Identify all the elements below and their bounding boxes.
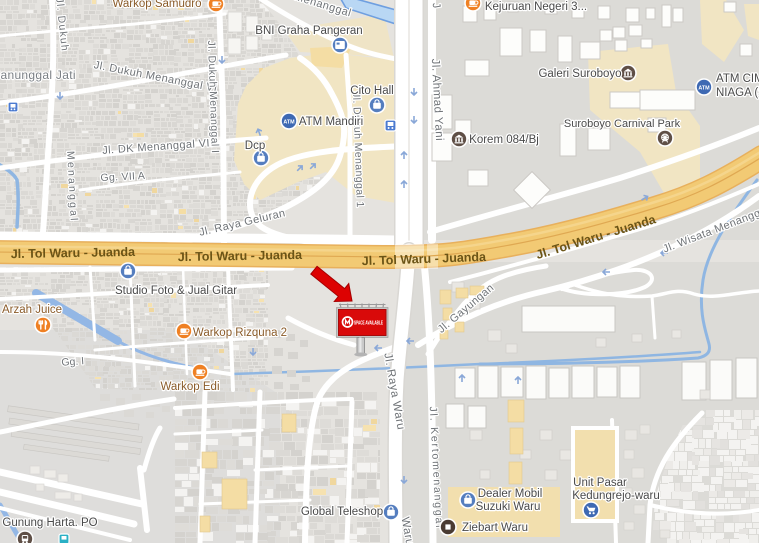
svg-text:Ziebart Waru: Ziebart Waru	[462, 522, 528, 534]
svg-text:Cito Hall: Cito Hall	[350, 85, 393, 97]
svg-text:ATM Mandiri: ATM Mandiri	[299, 116, 363, 128]
svg-text:Gg. VII A: Gg. VII A	[100, 170, 145, 184]
svg-text:Dealer Mobil: Dealer Mobil	[478, 488, 543, 500]
svg-text:Suzuki Waru: Suzuki Waru	[476, 501, 541, 513]
svg-text:Warkop Edi: Warkop Edi	[160, 381, 219, 393]
svg-text:Dcp: Dcp	[245, 140, 265, 152]
svg-text:Kejuruan Negeri 3...: Kejuruan Negeri 3...	[485, 1, 587, 13]
svg-text:Korem 084/Bj: Korem 084/Bj	[469, 134, 539, 146]
svg-text:Manunggal Jati: Manunggal Jati	[0, 68, 76, 82]
svg-text:Studio Foto & Jual Gitar: Studio Foto & Jual Gitar	[115, 285, 237, 297]
svg-text:ATM CIM: ATM CIM	[716, 73, 759, 85]
svg-text:ATM: ATM	[283, 120, 295, 126]
svg-text:Arzah Juice: Arzah Juice	[2, 304, 62, 316]
svg-text:Warkop Samudro: Warkop Samudro	[112, 0, 201, 10]
svg-text:Jl. Tol Waru - Juanda: Jl. Tol Waru - Juanda	[178, 248, 304, 264]
svg-text:Jl. Tol Waru - Juanda: Jl. Tol Waru - Juanda	[11, 245, 137, 261]
svg-text:SPACE AVAILABLE: SPACE AVAILABLE	[354, 321, 383, 327]
svg-text:Unit Pasar: Unit Pasar	[573, 477, 627, 489]
svg-text:NIAGA (S: NIAGA (S	[716, 87, 759, 99]
svg-text:Suroboyo Carnival Park: Suroboyo Carnival Park	[564, 118, 681, 130]
svg-text:Galeri Suroboyo: Galeri Suroboyo	[538, 68, 621, 80]
svg-text:Gunung Harta. PO: Gunung Harta. PO	[2, 517, 97, 529]
svg-text:Gg. I: Gg. I	[61, 355, 85, 369]
svg-text:ATM: ATM	[698, 86, 710, 92]
svg-text:Kedungrejo-waru: Kedungrejo-waru	[572, 490, 660, 502]
svg-text:BNI Graha Pangeran: BNI Graha Pangeran	[255, 25, 362, 37]
svg-text:Global Teleshop: Global Teleshop	[301, 506, 383, 518]
svg-text:Warkop Rizquna 2: Warkop Rizquna 2	[193, 327, 287, 339]
